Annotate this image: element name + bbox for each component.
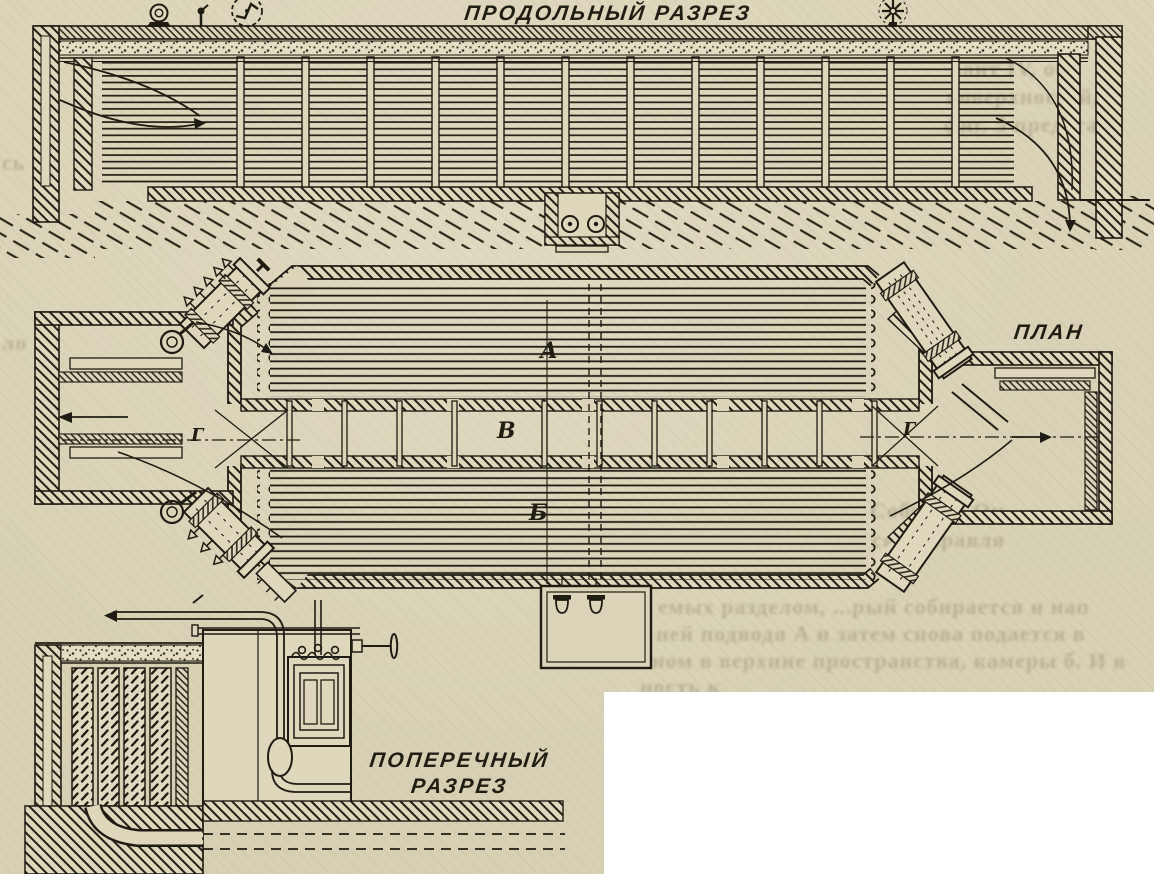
part-label-center-channel: В bbox=[497, 418, 516, 444]
cross-section-title-line1: ПОПЕРЕЧНЫЙ bbox=[351, 749, 569, 773]
upper-coil bbox=[257, 283, 879, 397]
lower-coil bbox=[257, 468, 879, 580]
cs-foundation bbox=[25, 806, 203, 874]
part-label-upper-coil: А bbox=[540, 338, 558, 364]
longitudinal-section-title: ПРОДОЛЬНЫЙ РАЗРЕЗ bbox=[417, 2, 800, 26]
plan-view bbox=[35, 240, 1112, 668]
cross-section-view bbox=[25, 595, 565, 874]
plan-title: ПЛАН bbox=[1013, 321, 1086, 345]
flange-icon bbox=[161, 331, 183, 353]
valve-handwheel-icon bbox=[352, 634, 397, 658]
cs-ground bbox=[203, 801, 565, 849]
fan-icon bbox=[232, 0, 262, 26]
gauge-icon bbox=[147, 5, 171, 28]
furnace-door bbox=[288, 657, 350, 746]
part-label-lower-coil: Б bbox=[529, 500, 548, 526]
roof bbox=[35, 26, 1122, 62]
cs-tube-columns bbox=[72, 668, 188, 806]
part-label-left-end: Г bbox=[191, 425, 203, 446]
handle-icon bbox=[198, 5, 209, 27]
scanned-page: вант IV, обр поверхностей, с фиг. 5 пред… bbox=[0, 0, 1154, 874]
valve-star-icon bbox=[879, 0, 907, 27]
floor-pit bbox=[545, 193, 619, 252]
left-pillar bbox=[74, 58, 92, 190]
plan-bottom-box bbox=[541, 578, 651, 668]
longitudinal-section bbox=[0, 0, 1154, 258]
part-label-right-end: Г bbox=[903, 419, 915, 440]
white-mask bbox=[604, 692, 1154, 874]
cross-section-title-line2: РАЗРЕЗ bbox=[351, 775, 569, 799]
